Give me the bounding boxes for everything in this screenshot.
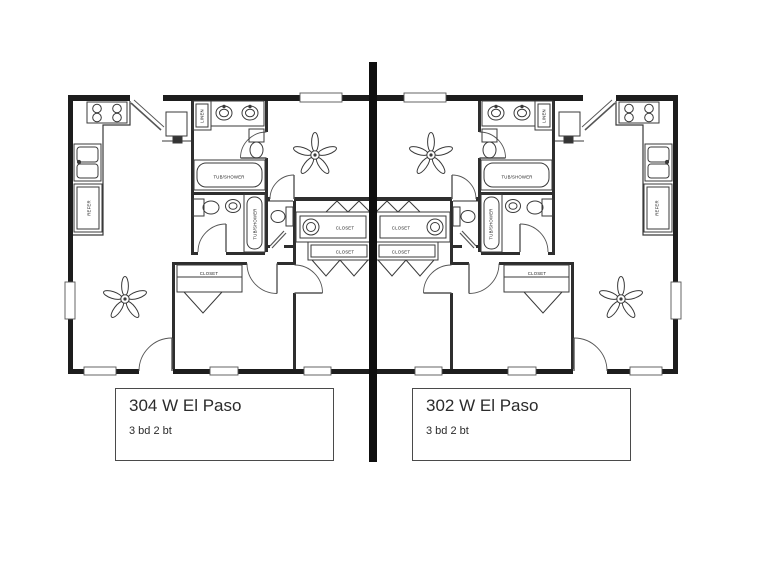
label-closet-hall: CLOSET (392, 226, 411, 231)
label-closet-bedroom2: CLOSET (392, 250, 411, 255)
label-refer: REFER (87, 200, 92, 216)
label-refer: REFER (655, 200, 660, 216)
label-closet-hall: CLOSET (336, 226, 355, 231)
label-tub-shower-master: TUB/SHOWER (501, 175, 532, 180)
unit-geometry-302 (376, 93, 681, 375)
label-closet-bedroom2: CLOSET (336, 250, 355, 255)
address-specs: 3 bd 2 bt (129, 425, 333, 437)
label-closet-bedroom1: CLOSET (528, 271, 547, 276)
label-linen: LINEN (542, 109, 547, 123)
label-tub-shower-hall: TUB/SHOWER (489, 208, 494, 239)
address-specs: 3 bd 2 bt (426, 425, 630, 437)
address-card-302: 302 W El Paso 3 bd 2 bt (412, 388, 631, 461)
label-tub-shower-master: TUB/SHOWER (213, 175, 244, 180)
floor-plan-svg: LINEN REFER TUB/SHOWER TUB/SHOWER CLOSET… (0, 0, 761, 588)
address-title: 304 W El Paso (129, 396, 333, 416)
label-closet-bedroom1: CLOSET (200, 271, 219, 276)
address-title: 302 W El Paso (426, 396, 630, 416)
floor-plan-page: LINEN REFER TUB/SHOWER TUB/SHOWER CLOSET… (0, 0, 761, 588)
label-linen: LINEN (200, 109, 205, 123)
party-wall-divider (369, 62, 377, 462)
unit-geometry-304 (65, 93, 370, 375)
address-card-304: 304 W El Paso 3 bd 2 bt (115, 388, 334, 461)
label-tub-shower-hall: TUB/SHOWER (253, 208, 258, 239)
